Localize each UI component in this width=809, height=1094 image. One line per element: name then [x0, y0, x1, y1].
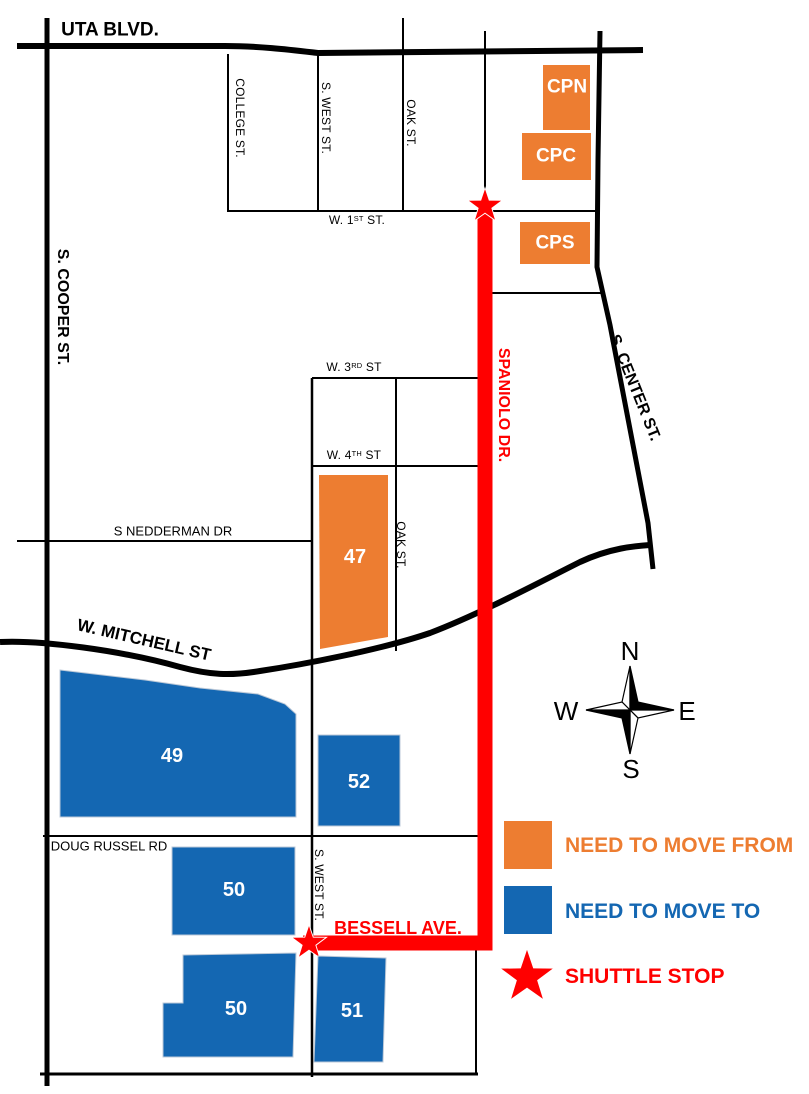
building-51-label: 51 — [341, 1001, 363, 1021]
building-47-label: 47 — [344, 547, 366, 567]
street-label-oak-top: OAK ST. — [405, 99, 417, 146]
w-3rd-sup: RD — [351, 361, 362, 370]
campus-shuttle-map: UTA BLVD. S. COOPER ST. COLLEGE ST. S. W… — [0, 0, 809, 1094]
street-label-doug-russel: DOUG RUSSEL RD — [51, 840, 168, 853]
building-49 — [60, 670, 296, 817]
legend-move-to-swatch — [504, 886, 552, 934]
w-4th-base: W. 4 — [327, 448, 352, 462]
legend-move-from-label: NEED TO MOVE FROM — [565, 834, 793, 858]
legend-shuttle-stop-label: SHUTTLE STOP — [565, 965, 724, 989]
w-4th-sup: TH — [352, 449, 362, 458]
w-3rd-rest: ST — [362, 360, 381, 374]
building-cpn-label: CPN — [547, 78, 587, 97]
compass-west-label: W — [554, 698, 579, 724]
street-label-w-1st: W. 1ST ST. — [329, 214, 385, 226]
street-uta-blvd — [17, 46, 643, 53]
compass-south-label: S — [622, 756, 639, 782]
street-label-spaniolo: SPANIOLO DR. — [495, 348, 511, 462]
legend-move-from-swatch — [504, 821, 552, 869]
building-52-label: 52 — [348, 772, 370, 792]
street-label-college: COLLEGE ST. — [234, 78, 246, 158]
w-1st-base: W. 1 — [329, 213, 354, 227]
building-cpn — [543, 65, 590, 130]
street-label-s-west-top: S. WEST ST. — [320, 82, 332, 154]
building-cps-label: CPS — [535, 234, 574, 253]
legend-shuttle-star-icon — [499, 948, 555, 1001]
street-label-nedderman: S NEDDERMAN DR — [114, 525, 232, 538]
street-label-bessell: BESSELL AVE. — [334, 919, 462, 937]
compass-north-label: N — [621, 638, 640, 664]
compass-east-label: E — [678, 698, 695, 724]
street-label-oak-mid: OAK ST. — [395, 521, 407, 568]
w-1st-sup: ST — [354, 214, 364, 223]
street-label-uta-blvd: UTA BLVD. — [61, 21, 159, 40]
legend-move-to-label: NEED TO MOVE TO — [565, 900, 760, 924]
building-50-upper-label: 50 — [223, 880, 245, 900]
street-label-s-west-bottom: S. WEST ST. — [313, 849, 325, 921]
w-1st-rest: ST. — [364, 213, 385, 227]
street-label-s-cooper: S. COOPER ST. — [54, 249, 70, 365]
street-s-center — [597, 31, 653, 569]
street-label-w-3rd: W. 3RD ST — [326, 361, 381, 373]
building-cpc-label: CPC — [536, 147, 576, 166]
shuttle-stop-star-south — [291, 925, 326, 958]
w-4th-rest: ST — [362, 448, 381, 462]
compass-rose — [586, 666, 674, 754]
street-label-w-4th: W. 4TH ST — [327, 449, 381, 461]
building-50-lower-label: 50 — [225, 999, 247, 1019]
building-49-label: 49 — [161, 746, 183, 766]
w-3rd-base: W. 3 — [326, 360, 351, 374]
